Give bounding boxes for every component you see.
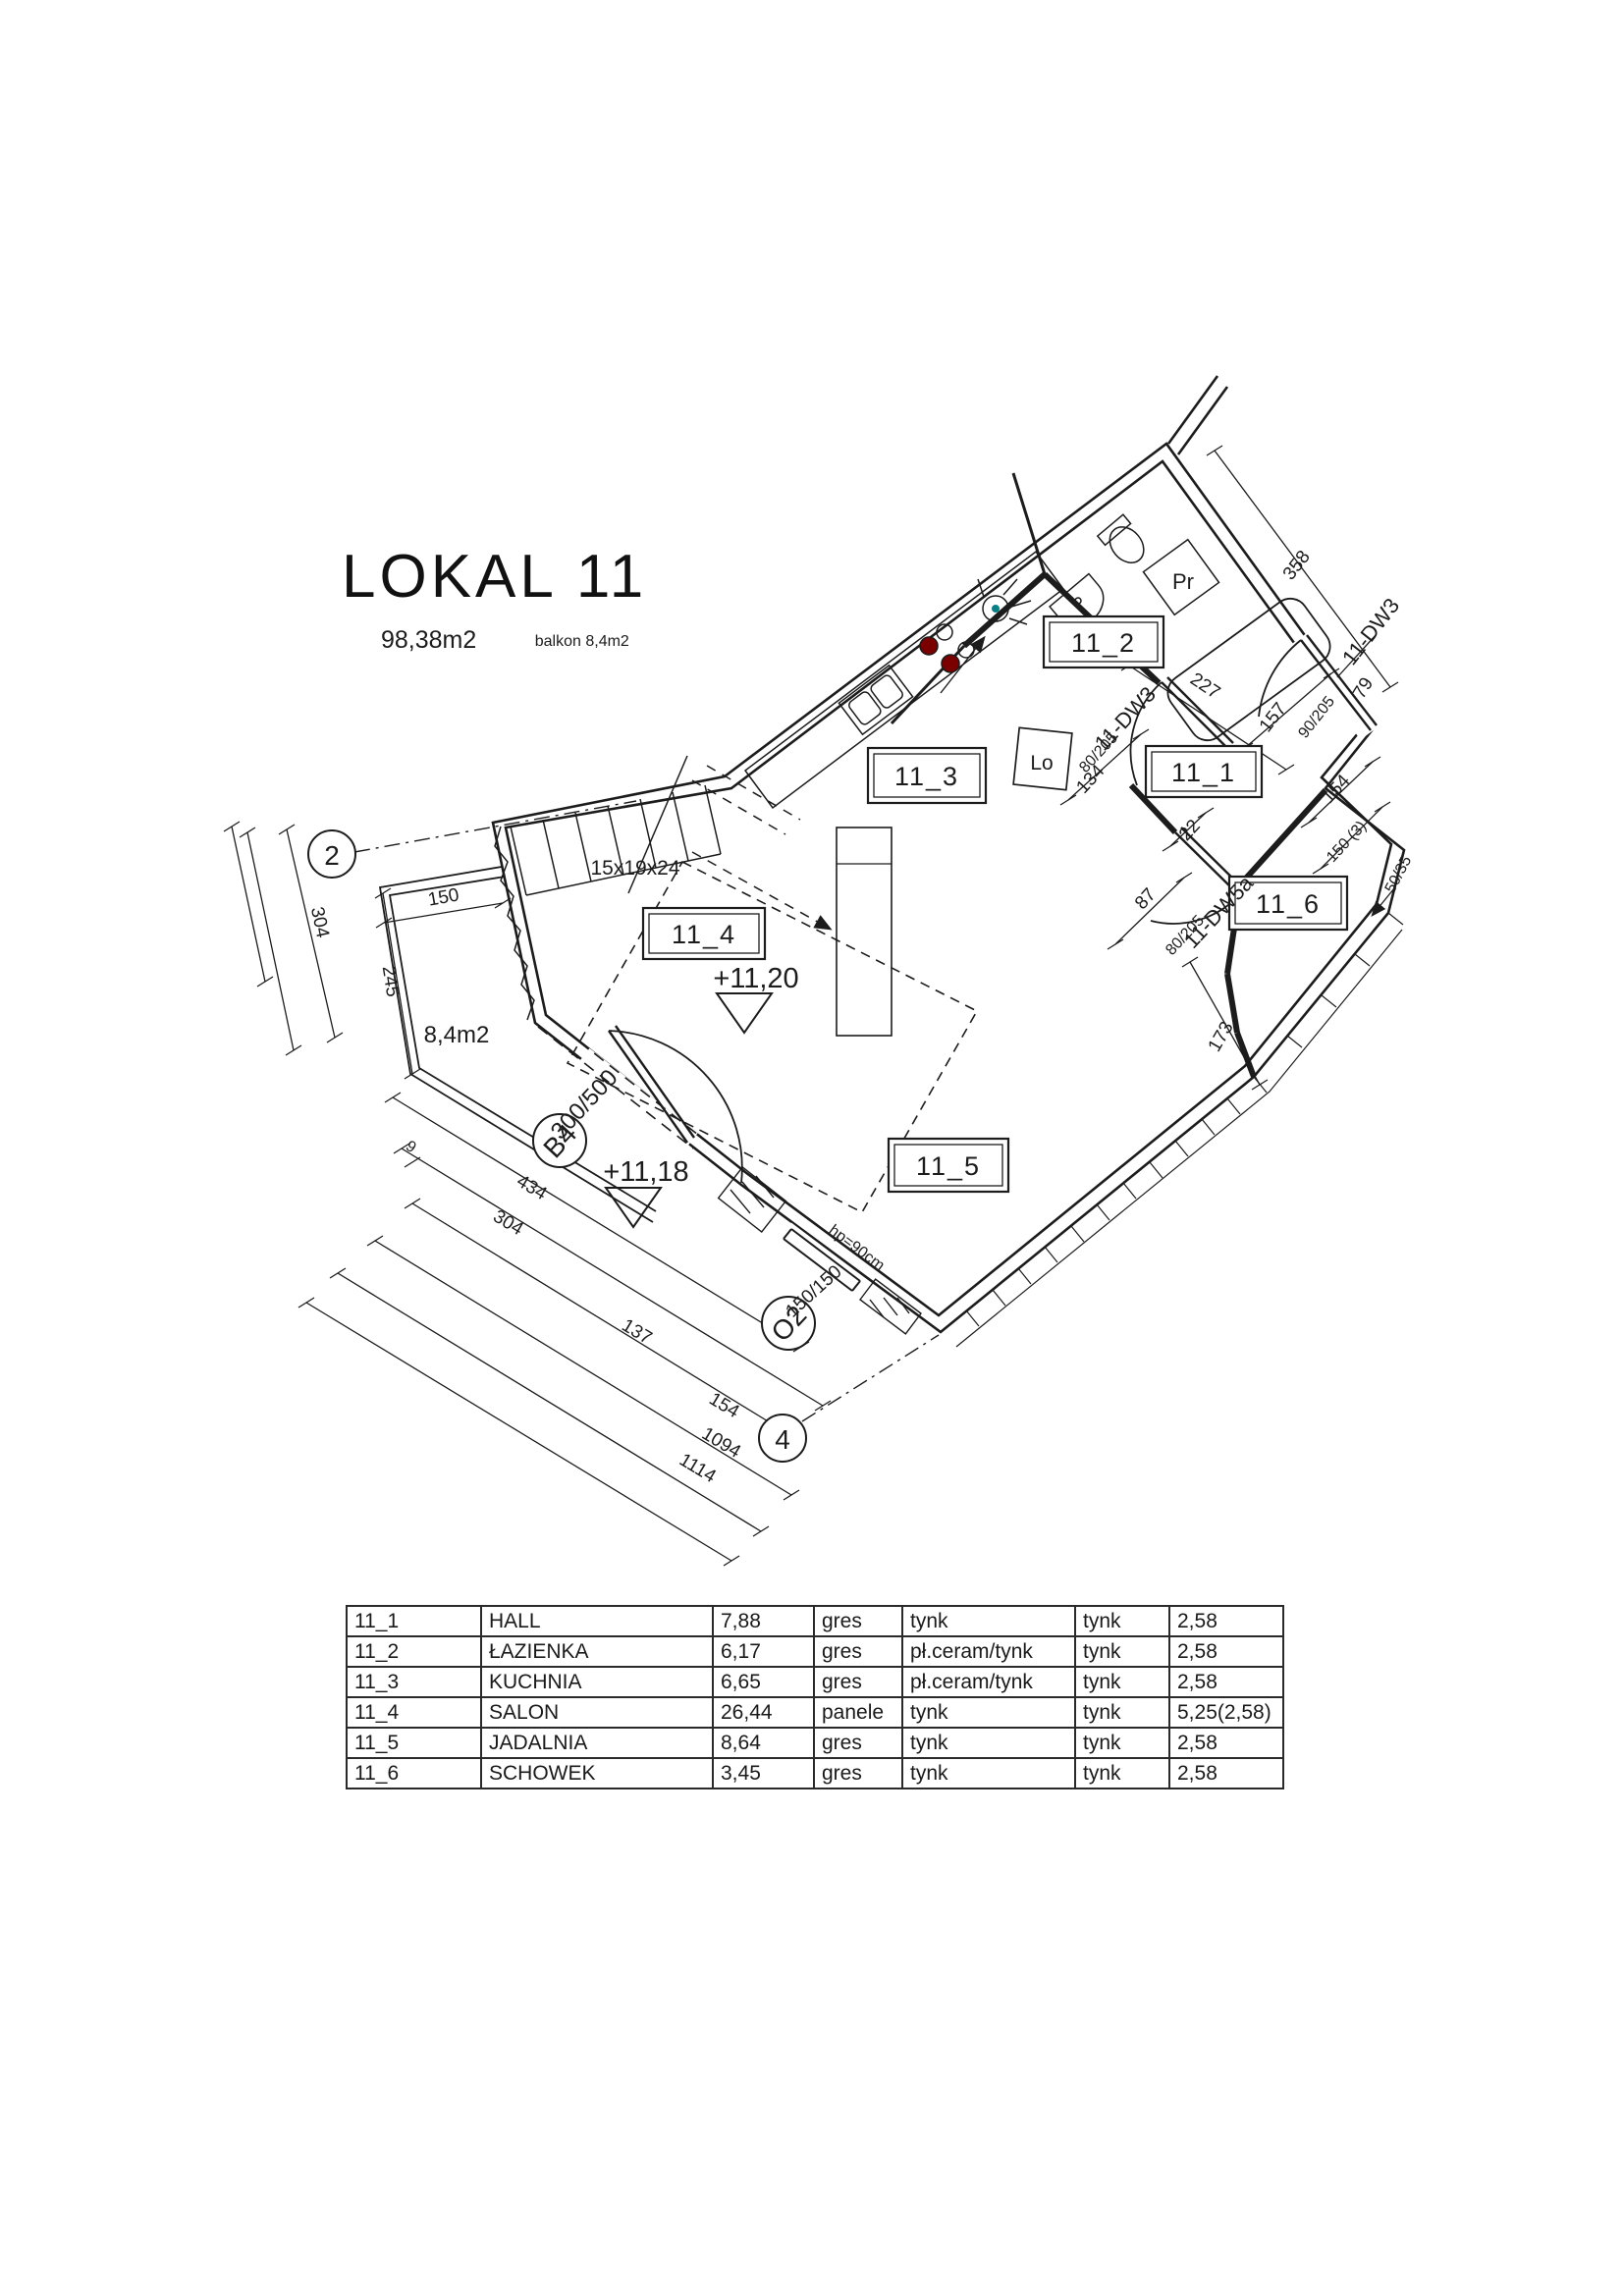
cell-room-floor: gres	[814, 1606, 902, 1636]
entry-door-name: 11-DW3	[1337, 594, 1404, 670]
washer-label: Pr	[1172, 569, 1194, 594]
cell-room-ceiling: tynk	[1075, 1667, 1169, 1697]
room-label-11_3: 11_3	[894, 762, 959, 791]
cell-room-wall: pł.ceram/tynk	[902, 1667, 1075, 1697]
cell-room-name: KUCHNIA	[481, 1667, 713, 1697]
cell-room-wall: tynk	[902, 1697, 1075, 1728]
room-label-11_1: 11_1	[1171, 758, 1236, 787]
plan-labels: 11_1 11_2 11_3 11_4 11_5 11_6 +11,20 +11…	[306, 547, 1416, 1487]
cell-room-height: 2,58	[1169, 1728, 1283, 1758]
cell-room-wall: tynk	[902, 1758, 1075, 1789]
stairs	[511, 756, 830, 929]
cell-room-id: 11_2	[347, 1636, 481, 1667]
cell-room-area: 3,45	[713, 1758, 814, 1789]
cell-room-name: JADALNIA	[481, 1728, 713, 1758]
table-row: 11_1 HALL 7,88 gres tynk tynk 2,58	[347, 1606, 1283, 1636]
cell-room-ceiling: tynk	[1075, 1606, 1169, 1636]
cell-room-ceiling: tynk	[1075, 1636, 1169, 1667]
total-area: 98,38m2	[381, 626, 476, 655]
cell-room-floor: gres	[814, 1758, 902, 1789]
dim-1094: 1094	[698, 1423, 744, 1463]
dim-9: 9	[403, 1138, 418, 1156]
cell-room-name: SALON	[481, 1697, 713, 1728]
cell-room-floor: gres	[814, 1667, 902, 1697]
cell-room-ceiling: tynk	[1075, 1728, 1169, 1758]
dim-150-balcony: 150	[426, 884, 460, 910]
axis-marker-2: 2	[324, 840, 340, 871]
dim-1114: 1114	[676, 1450, 720, 1488]
cell-room-id: 11_6	[347, 1758, 481, 1789]
cell-room-id: 11_4	[347, 1697, 481, 1728]
cell-room-area: 6,17	[713, 1636, 814, 1667]
dim-245: 245	[378, 964, 404, 998]
cell-room-area: 6,65	[713, 1667, 814, 1697]
table-row: 11_3 KUCHNIA 6,65 gres pł.ceram/tynk tyn…	[347, 1667, 1283, 1697]
dim-150-right: 150 (3)	[1324, 818, 1370, 866]
dim-137: 137	[618, 1315, 655, 1349]
cell-room-floor: panele	[814, 1697, 902, 1728]
cell-room-wall: pł.ceram/tynk	[902, 1636, 1075, 1667]
table-row: 11_5 JADALNIA 8,64 gres tynk tynk 2,58	[347, 1728, 1283, 1758]
cell-room-area: 7,88	[713, 1606, 814, 1636]
cell-room-height: 2,58	[1169, 1758, 1283, 1789]
cell-room-id: 11_5	[347, 1728, 481, 1758]
cell-room-height: 2,58	[1169, 1636, 1283, 1667]
cell-room-name: HALL	[481, 1606, 713, 1636]
cell-room-name: SCHOWEK	[481, 1758, 713, 1789]
cell-room-area: 8,64	[713, 1728, 814, 1758]
balcony-area-label: 8,4m2	[424, 1022, 490, 1048]
cell-room-height: 2,58	[1169, 1667, 1283, 1697]
dim-304-left: 304	[306, 905, 333, 940]
axis-marker-4: 4	[775, 1424, 790, 1455]
balcony-note: balkon 8,4m2	[535, 633, 629, 651]
floorplan-sheet: 11_1 11_2 11_3 11_4 11_5 11_6 +11,20 +11…	[0, 0, 1623, 2296]
door-opening-masks	[572, 632, 1378, 1300]
cell-room-ceiling: tynk	[1075, 1758, 1169, 1789]
cell-room-name: ŁAZIENKA	[481, 1636, 713, 1667]
table-row: 11_4 SALON 26,44 panele tynk tynk 5,25(2…	[347, 1697, 1283, 1728]
floorplan-drawing: 11_1 11_2 11_3 11_4 11_5 11_6 +11,20 +11…	[0, 0, 1623, 2296]
dim-227: 227	[1186, 669, 1223, 704]
cell-room-wall: tynk	[902, 1728, 1075, 1758]
dim-304-bottom: 304	[489, 1206, 526, 1241]
cell-room-floor: gres	[814, 1636, 902, 1667]
dim-87: 87	[1131, 884, 1161, 914]
cell-room-height: 5,25(2,58)	[1169, 1697, 1283, 1728]
cell-room-ceiling: tynk	[1075, 1697, 1169, 1728]
room-label-11_4: 11_4	[672, 920, 736, 949]
dim-22: 22	[1175, 816, 1205, 845]
dim-434: 434	[513, 1171, 550, 1205]
cell-room-wall: tynk	[902, 1606, 1075, 1636]
cell-room-id: 11_1	[347, 1606, 481, 1636]
table-row: 11_2 ŁAZIENKA 6,17 gres pł.ceram/tynk ty…	[347, 1636, 1283, 1667]
room-spec-table: 11_1 HALL 7,88 gres tynk tynk 2,58 11_2 …	[346, 1605, 1284, 1789]
entry-door-size: 90/205	[1295, 693, 1338, 741]
table-row: 11_6 SCHOWEK 3,45 gres tynk tynk 2,58	[347, 1758, 1283, 1789]
room-label-11_5: 11_5	[916, 1151, 981, 1181]
level-salon: +11,20	[713, 963, 798, 994]
dim-154-bottom: 154	[705, 1389, 742, 1423]
room-label-11_6: 11_6	[1256, 889, 1321, 919]
cell-room-floor: gres	[814, 1728, 902, 1758]
stairs-label: 15x19x24	[590, 857, 679, 880]
cell-room-id: 11_3	[347, 1667, 481, 1697]
level-dining: +11,18	[603, 1156, 688, 1188]
page-title: LOKAL 11	[342, 542, 647, 612]
cell-room-area: 26,44	[713, 1697, 814, 1728]
cell-room-height: 2,58	[1169, 1606, 1283, 1636]
room-label-11_2: 11_2	[1071, 628, 1136, 658]
fridge-label: Lo	[1030, 752, 1053, 774]
